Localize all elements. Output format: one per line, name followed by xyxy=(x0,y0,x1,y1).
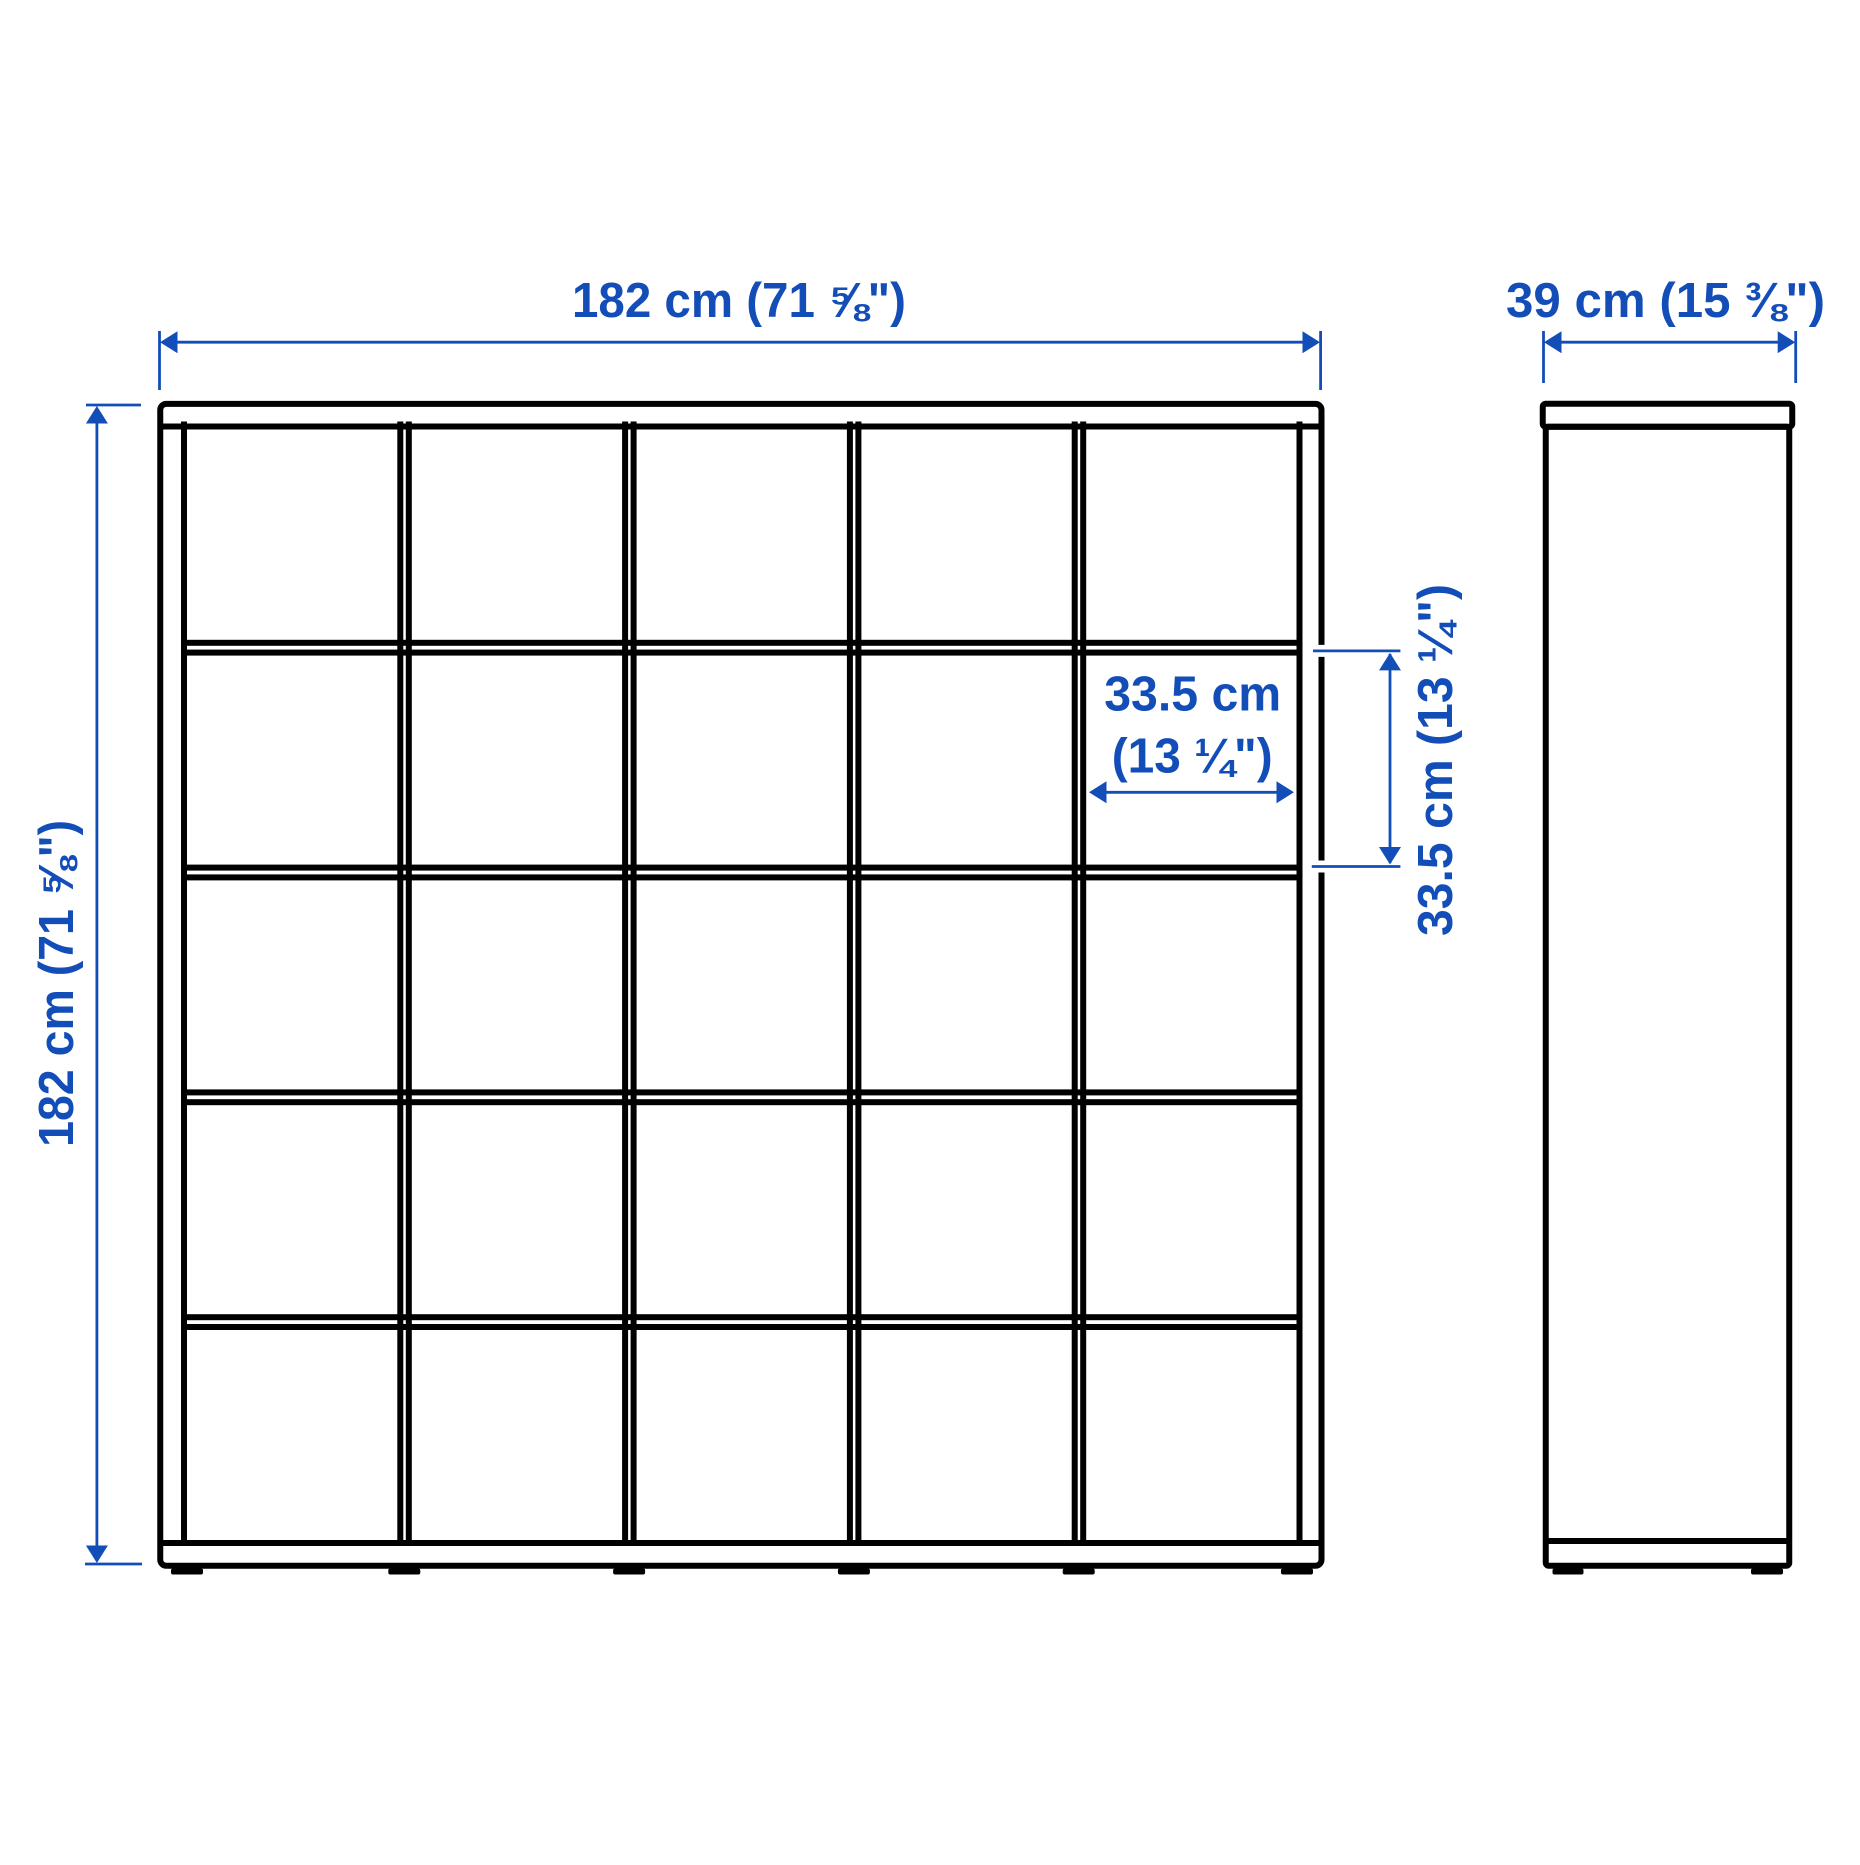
svg-text:(13 ¼"): (13 ¼") xyxy=(1112,730,1273,784)
svg-text:39 cm (15 ⅜"): 39 cm (15 ⅜") xyxy=(1506,274,1825,328)
svg-text:182 cm (71 ⅝"): 182 cm (71 ⅝") xyxy=(572,274,906,328)
svg-text:182 cm (71 ⅝"): 182 cm (71 ⅝") xyxy=(30,820,84,1147)
svg-text:33.5 cm: 33.5 cm xyxy=(1104,668,1281,722)
svg-text:33.5 cm (13 ¼"): 33.5 cm (13 ¼") xyxy=(1409,584,1463,936)
